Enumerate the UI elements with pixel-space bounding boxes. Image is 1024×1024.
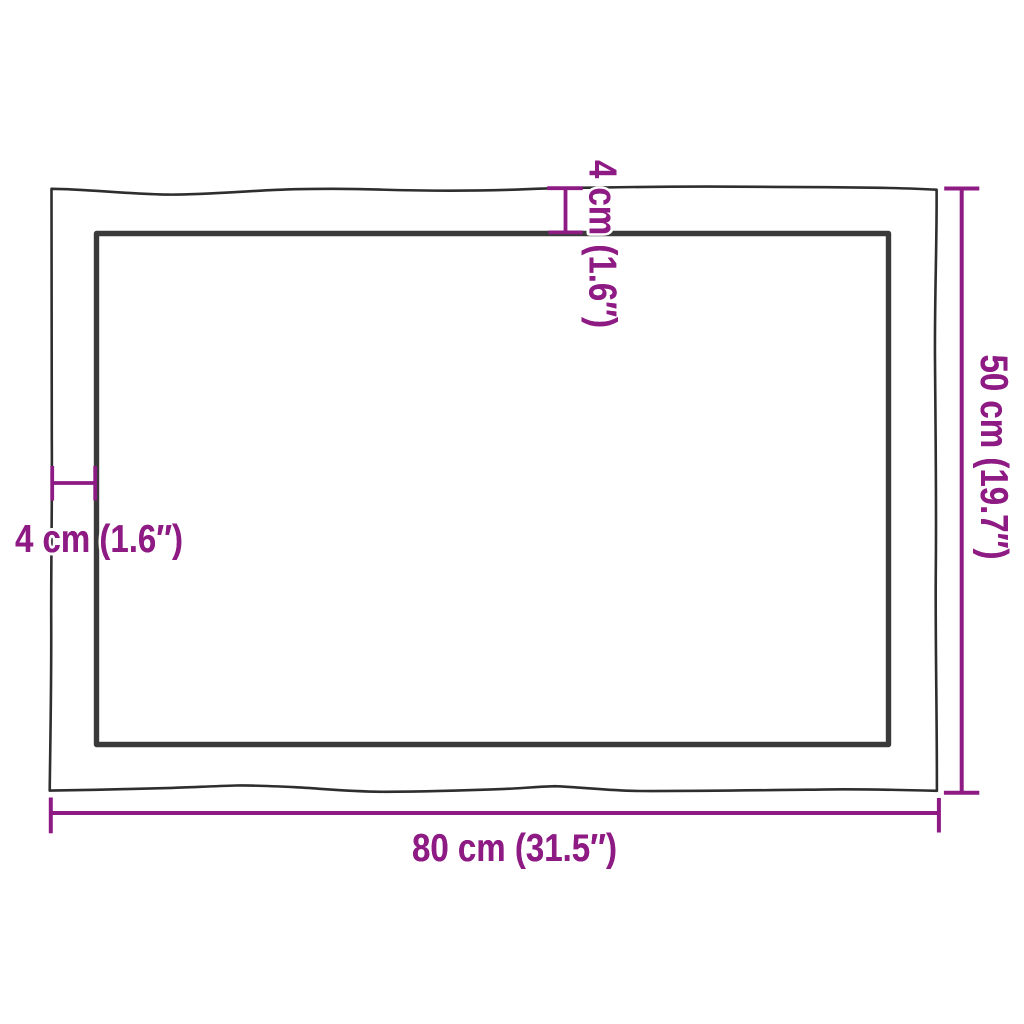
svg-text:4 cm (1.6″): 4 cm (1.6″)	[581, 160, 624, 328]
svg-text:50 cm (19.7″): 50 cm (19.7″)	[972, 355, 1015, 560]
svg-text:80 cm (31.5″): 80 cm (31.5″)	[412, 827, 617, 870]
svg-text:4 cm (1.6″): 4 cm (1.6″)	[15, 518, 183, 561]
